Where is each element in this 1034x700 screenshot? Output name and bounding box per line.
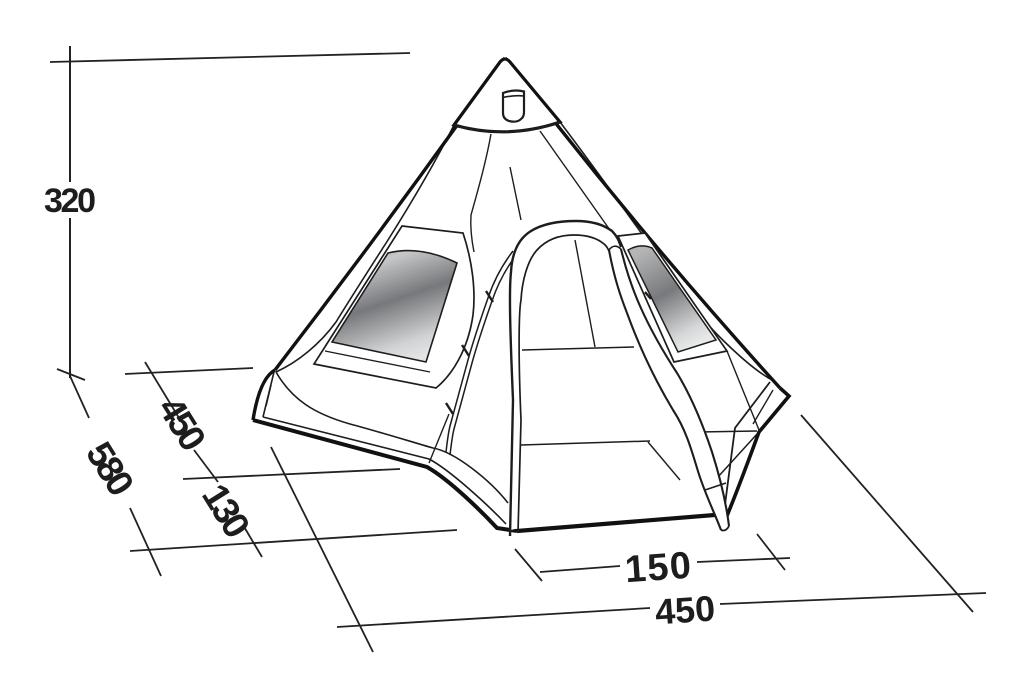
- svg-text:320: 320: [44, 182, 96, 220]
- svg-text:450: 450: [654, 587, 717, 632]
- svg-text:150: 150: [624, 545, 693, 592]
